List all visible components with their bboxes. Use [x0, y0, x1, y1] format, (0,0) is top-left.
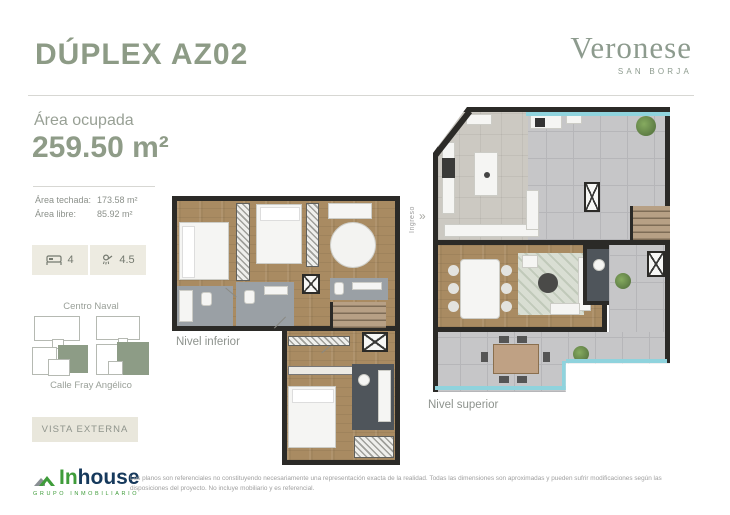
armchair — [522, 255, 538, 268]
vista-externa-button[interactable]: VISTA EXTERNA — [32, 417, 138, 442]
keyplan-top-label: Centro Naval — [30, 301, 152, 312]
chair — [448, 283, 459, 294]
area-ocupada-label: Área ocupada — [34, 112, 134, 130]
grill — [535, 118, 545, 127]
floorplan-inferior — [172, 196, 400, 465]
keyplan-bottom-label: Calle Fray Angélico — [24, 380, 158, 391]
ingreso-label: Ingreso — [409, 206, 416, 233]
laundry-closet — [354, 436, 394, 458]
keyplan-diagram-right — [96, 316, 150, 376]
glass-railing — [566, 359, 667, 363]
area-techada-value: 173.58 m² — [97, 195, 138, 205]
chair — [448, 265, 459, 276]
chair — [501, 283, 512, 294]
sofa-chaise — [550, 303, 580, 315]
wall — [665, 245, 670, 337]
toilet — [358, 374, 370, 386]
elevator-x-box — [362, 332, 388, 352]
living-dining-block — [433, 240, 607, 332]
sink — [352, 282, 382, 290]
area-ocupada-value: 259.50 m² — [32, 131, 169, 165]
bathtub — [378, 370, 391, 422]
brand-logo: Veronese SAN BORJA — [540, 30, 692, 76]
bedrooms-badge: 4 — [32, 245, 88, 275]
bed-pillows — [260, 207, 300, 221]
header-divider — [28, 95, 694, 96]
stairs — [330, 302, 386, 328]
toilet — [201, 292, 212, 306]
floorplan-superior: Ingreso » — [425, 105, 670, 397]
area-techada-label: Área techada: — [35, 195, 91, 205]
outdoor-chair — [499, 376, 509, 383]
house-icon — [33, 472, 57, 490]
keyplan-unit — [34, 316, 80, 341]
outdoor-chair — [481, 352, 488, 362]
bathtub — [179, 290, 193, 322]
glass-railing — [562, 361, 566, 390]
bathrooms-badge: 4.5 — [90, 245, 146, 275]
sidebar-divider — [33, 186, 155, 187]
logo-subtitle: GRUPO INMOBILIARIO — [33, 491, 140, 497]
bed — [179, 222, 229, 280]
bedrooms-count: 4 — [67, 254, 73, 266]
keyplan-unit — [108, 361, 123, 375]
chair — [501, 265, 512, 276]
elevator-x-box — [647, 251, 665, 277]
outdoor-chair — [517, 376, 527, 383]
toilet — [334, 282, 344, 295]
plant — [636, 116, 656, 136]
outdoor-chair — [499, 336, 509, 343]
glass-railing — [526, 112, 675, 116]
keyplan-unit — [48, 359, 70, 376]
keyplan-unit — [96, 316, 140, 340]
keyplan-diagram-left — [32, 316, 88, 376]
inferior-plan-label: Nivel inferior — [176, 336, 240, 348]
brand-name: Veronese — [540, 30, 692, 66]
kitchen-peninsula — [526, 190, 539, 230]
toilet — [244, 290, 255, 304]
bed — [288, 386, 336, 448]
shower-icon — [101, 254, 114, 267]
bathroom — [236, 282, 294, 326]
brand-location: SAN BORJA — [540, 67, 692, 76]
closet — [236, 203, 250, 281]
outdoor-table — [493, 344, 539, 374]
door-x-box — [584, 182, 600, 212]
stove — [442, 158, 455, 178]
inhouse-logo: Inhouse GRUPO INMOBILIARIO — [33, 466, 140, 497]
glass-railing — [435, 386, 566, 390]
bed — [256, 204, 302, 264]
bed-pillows — [182, 226, 195, 278]
bathroom-dark — [352, 364, 394, 430]
bathrooms-count: 4.5 — [119, 254, 134, 266]
round-tub — [330, 222, 376, 268]
closet — [288, 336, 350, 346]
kitchen-counter — [442, 142, 455, 214]
superior-upper-block — [433, 107, 670, 245]
island-sink — [484, 172, 490, 178]
bed-pillows — [292, 389, 334, 403]
bed-icon — [46, 255, 62, 266]
area-libre-value: 85.92 m² — [97, 209, 133, 219]
kitchen-island — [474, 152, 498, 196]
flyer-canvas: DÚPLEX AZ02 Veronese SAN BORJA Área ocup… — [0, 0, 730, 515]
superior-plan-label: Nivel superior — [428, 399, 498, 411]
area-libre-label: Área libre: — [35, 209, 76, 219]
shaft-x-box — [302, 274, 320, 294]
bathroom — [330, 278, 388, 300]
logo-text-in: In — [59, 466, 78, 489]
dining-table — [460, 259, 500, 319]
plant — [615, 273, 631, 289]
toilet — [593, 259, 605, 271]
stairs — [630, 206, 675, 240]
page-title: DÚPLEX AZ02 — [35, 38, 248, 72]
closet — [306, 203, 319, 267]
bath-vanity — [328, 203, 372, 219]
footer-disclaimer: Los planos son referenciales no constitu… — [130, 474, 696, 495]
ingreso-chevrons-icon: » — [419, 209, 426, 223]
bbq-counter — [530, 114, 562, 129]
chair — [448, 301, 459, 312]
bathroom — [177, 286, 233, 326]
coffee-table — [538, 273, 558, 293]
chair — [501, 301, 512, 312]
wall — [433, 332, 438, 392]
outdoor-chair — [517, 336, 527, 343]
sink — [264, 286, 288, 295]
terrace-main — [433, 332, 670, 392]
kitchen-counter — [444, 224, 539, 237]
outdoor-chair — [543, 352, 550, 362]
